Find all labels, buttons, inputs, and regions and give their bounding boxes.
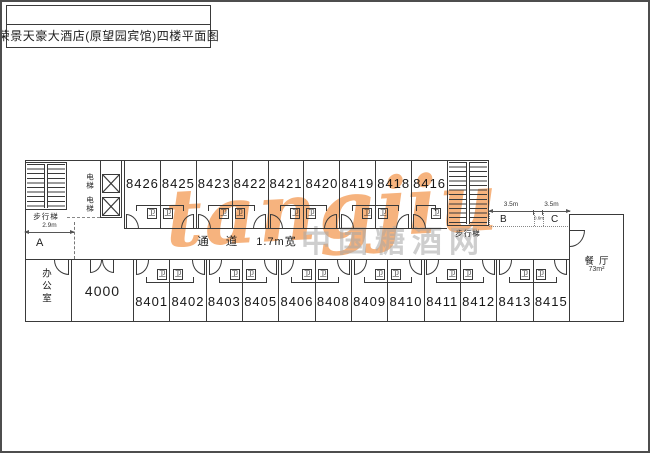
- alcove-wall: [509, 277, 557, 283]
- corridor-name: 通道: [197, 233, 254, 249]
- alcove-wall: [280, 205, 327, 211]
- title-block: 荣景天豪大酒店(原望园宾馆)四楼平面图: [6, 5, 211, 48]
- floorplan: 步行梯 电梯 电梯 8426 8425: [2, 2, 648, 451]
- bathroom-box: 卫: [391, 269, 401, 280]
- room-number: 8413: [498, 294, 531, 309]
- elevator-shaft: [100, 160, 122, 218]
- bathroom-box: 卫: [246, 269, 256, 280]
- door-arc: [192, 260, 205, 275]
- alcove-wall: [136, 205, 183, 211]
- room-number: 8403: [208, 294, 241, 309]
- zone-c-label: C: [551, 214, 558, 225]
- room-number: 8402: [172, 294, 205, 309]
- room-number: 8420: [305, 176, 338, 191]
- room-pair-entry: 卫 卫: [352, 260, 425, 284]
- room-number: 8408: [317, 294, 350, 309]
- zone-a-dashed-line: [74, 222, 75, 259]
- door-arc: [281, 260, 294, 275]
- alcove-wall: [291, 277, 339, 283]
- elevator-1-icon: [102, 174, 120, 193]
- door-arc: [209, 260, 222, 275]
- zone-strip: B 0.6m C: [489, 213, 570, 227]
- dim-small: 0.6m: [534, 216, 544, 221]
- bathroom-box: 卫: [163, 208, 173, 219]
- stairs-right-label: 步行梯: [447, 228, 489, 239]
- room-number: 8415: [535, 294, 568, 309]
- alcove-wall: [146, 277, 194, 283]
- elevator-1-label: 电梯: [86, 173, 94, 190]
- room-number: 8422: [234, 176, 267, 191]
- bathroom-box: 卫: [302, 269, 312, 280]
- room-number: 8411: [426, 294, 458, 309]
- bathroom-box: 卫: [362, 208, 372, 219]
- page-title: 荣景天豪大酒店(原望园宾馆)四楼平面图: [7, 25, 210, 46]
- room-pair-entry: 卫 卫: [279, 260, 352, 284]
- alcove-wall: [364, 277, 412, 283]
- room-pair-entry: 卫 卫: [134, 260, 207, 284]
- room-number: 8421: [270, 176, 303, 191]
- door-arc: [253, 214, 266, 229]
- door-arc: [396, 214, 409, 229]
- dim-line-left: [25, 232, 74, 233]
- room-pair-entry: 卫 卫: [124, 205, 196, 229]
- bathroom-box: 卫: [447, 269, 457, 280]
- bathroom-box: 卫: [318, 269, 328, 280]
- door-arc: [409, 260, 422, 275]
- dim-right-second: 3.5m: [533, 201, 570, 208]
- door-arc: [324, 214, 337, 229]
- door-arc: [499, 260, 512, 275]
- corridor-label: 通道 1.7m宽: [182, 234, 312, 248]
- alcove-wall: [219, 277, 267, 283]
- door-arc: [181, 214, 194, 229]
- door-arc: [126, 214, 139, 229]
- room-number: 8410: [390, 294, 423, 309]
- room-number: 8419: [341, 176, 374, 191]
- room-number: 8425: [162, 176, 195, 191]
- door-arc: [136, 260, 149, 275]
- room-number: 8401: [135, 294, 168, 309]
- dining-room-label: 餐厅: [569, 253, 624, 267]
- bathroom-box: 卫: [536, 269, 546, 280]
- zone-b-label: B: [500, 214, 507, 225]
- stairs-left: [25, 162, 67, 210]
- floorplan-image: tangjiu 中国糖酒网 荣景天豪大酒店(原望园宾馆)四楼平面图 步行梯 电梯: [0, 0, 650, 453]
- bathroom-box: 卫: [290, 208, 300, 219]
- door-arc: [554, 260, 567, 275]
- room-pair-entry: 卫 卫: [196, 205, 268, 229]
- bathroom-box: 卫: [173, 269, 183, 280]
- corridor-width: 1.7m宽: [256, 233, 296, 249]
- bathroom-box: 卫: [235, 208, 245, 219]
- bathroom-box: 卫: [230, 269, 240, 280]
- door-arc: [198, 214, 211, 229]
- elevator-2-label: 电梯: [86, 196, 94, 213]
- arrowhead-left: [24, 230, 29, 234]
- room-number: 8406: [281, 294, 314, 309]
- room-number: 8405: [244, 294, 277, 309]
- room-number: 8412: [462, 294, 495, 309]
- bathroom-box: 卫: [463, 269, 473, 280]
- room-4000: 4000: [72, 259, 134, 322]
- room-number: 8426: [126, 176, 159, 191]
- stair-steps: [48, 164, 65, 208]
- room-pair-entry: 卫 卫: [207, 260, 280, 284]
- stairs-left-label: 步行梯: [25, 211, 67, 222]
- room-pair-entry: 卫 卫: [497, 260, 570, 284]
- room-number: 8416: [413, 176, 446, 191]
- stair-steps: [449, 162, 466, 224]
- room-number: 8423: [198, 176, 231, 191]
- zone-a-label: A: [36, 237, 43, 249]
- top-row-doors: 卫 卫 卫 卫 卫 卫 卫 卫: [124, 205, 447, 229]
- dim-right-first: 3.5m: [489, 201, 533, 208]
- alcove-wall: [436, 277, 484, 283]
- dim-left: 2.9m: [25, 222, 74, 229]
- alcove-wall: [352, 205, 399, 211]
- room-single-entry: 卫: [411, 205, 447, 229]
- dim-line-right: [489, 211, 570, 212]
- bathroom-box: 卫: [431, 208, 441, 219]
- elevator-2-icon: [102, 197, 120, 216]
- door-arc: [270, 214, 283, 229]
- bathroom-box: 卫: [306, 208, 316, 219]
- room-pair-entry: 卫 卫: [424, 260, 497, 284]
- office-label: 办公室: [38, 268, 52, 306]
- room-pair-entry: 卫 卫: [268, 205, 340, 229]
- room-4000-label: 4000: [85, 283, 120, 299]
- title-block-empty-cell: [7, 6, 210, 25]
- bathroom-box: 卫: [520, 269, 530, 280]
- bathroom-box: 卫: [147, 208, 157, 219]
- bathroom-box: 卫: [219, 208, 229, 219]
- door-arc: [341, 214, 354, 229]
- bathroom-box: 卫: [378, 208, 388, 219]
- room-pair-entry: 卫 卫: [339, 205, 411, 229]
- bathroom-box: 卫: [375, 269, 385, 280]
- alcove-wall: [208, 205, 255, 211]
- door-arc: [413, 214, 426, 229]
- bathroom-box: 卫: [157, 269, 167, 280]
- door-arc: [426, 260, 439, 275]
- room-number: 8418: [377, 176, 410, 191]
- room-number: 8409: [353, 294, 386, 309]
- door-arc: [482, 260, 495, 275]
- stair-steps: [27, 164, 44, 208]
- door-arc: [354, 260, 367, 275]
- dining-room-area: 73m²: [569, 266, 624, 273]
- elevator-lobby-dashed-line: [67, 217, 100, 218]
- stairs-right: [447, 160, 489, 226]
- door-arc: [337, 260, 350, 275]
- stair-steps: [470, 162, 487, 224]
- bottom-row-doors: 卫 卫 卫 卫 卫 卫 卫 卫: [134, 260, 569, 284]
- door-arc: [264, 260, 277, 275]
